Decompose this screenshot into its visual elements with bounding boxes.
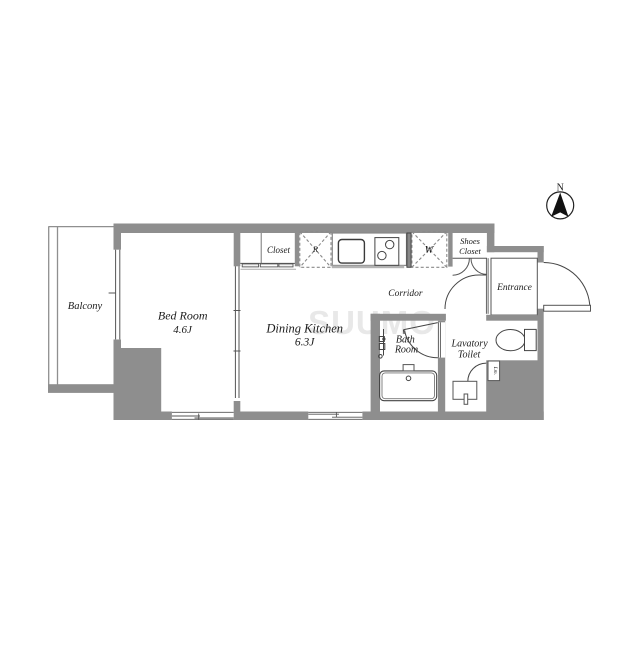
svg-text:Dining Kitchen: Dining Kitchen (265, 321, 343, 335)
svg-text:4.6J: 4.6J (173, 324, 193, 336)
svg-text:Closet: Closet (267, 245, 291, 255)
svg-text:Room: Room (394, 344, 418, 355)
svg-text:Lavatory: Lavatory (451, 339, 489, 350)
svg-text:Lm.: Lm. (492, 366, 498, 375)
svg-text:N: N (557, 183, 564, 194)
svg-text:Closet: Closet (459, 246, 481, 256)
svg-text:Bed Room: Bed Room (158, 309, 208, 323)
svg-text:Shoes: Shoes (460, 236, 481, 246)
svg-text:R: R (312, 244, 319, 254)
svg-text:Balcony: Balcony (68, 301, 103, 312)
svg-text:Entrance: Entrance (496, 283, 532, 293)
svg-text:Corridor: Corridor (388, 289, 423, 299)
svg-text:W: W (425, 245, 435, 256)
svg-text:6.3J: 6.3J (295, 337, 315, 349)
svg-text:Toilet: Toilet (458, 350, 481, 361)
